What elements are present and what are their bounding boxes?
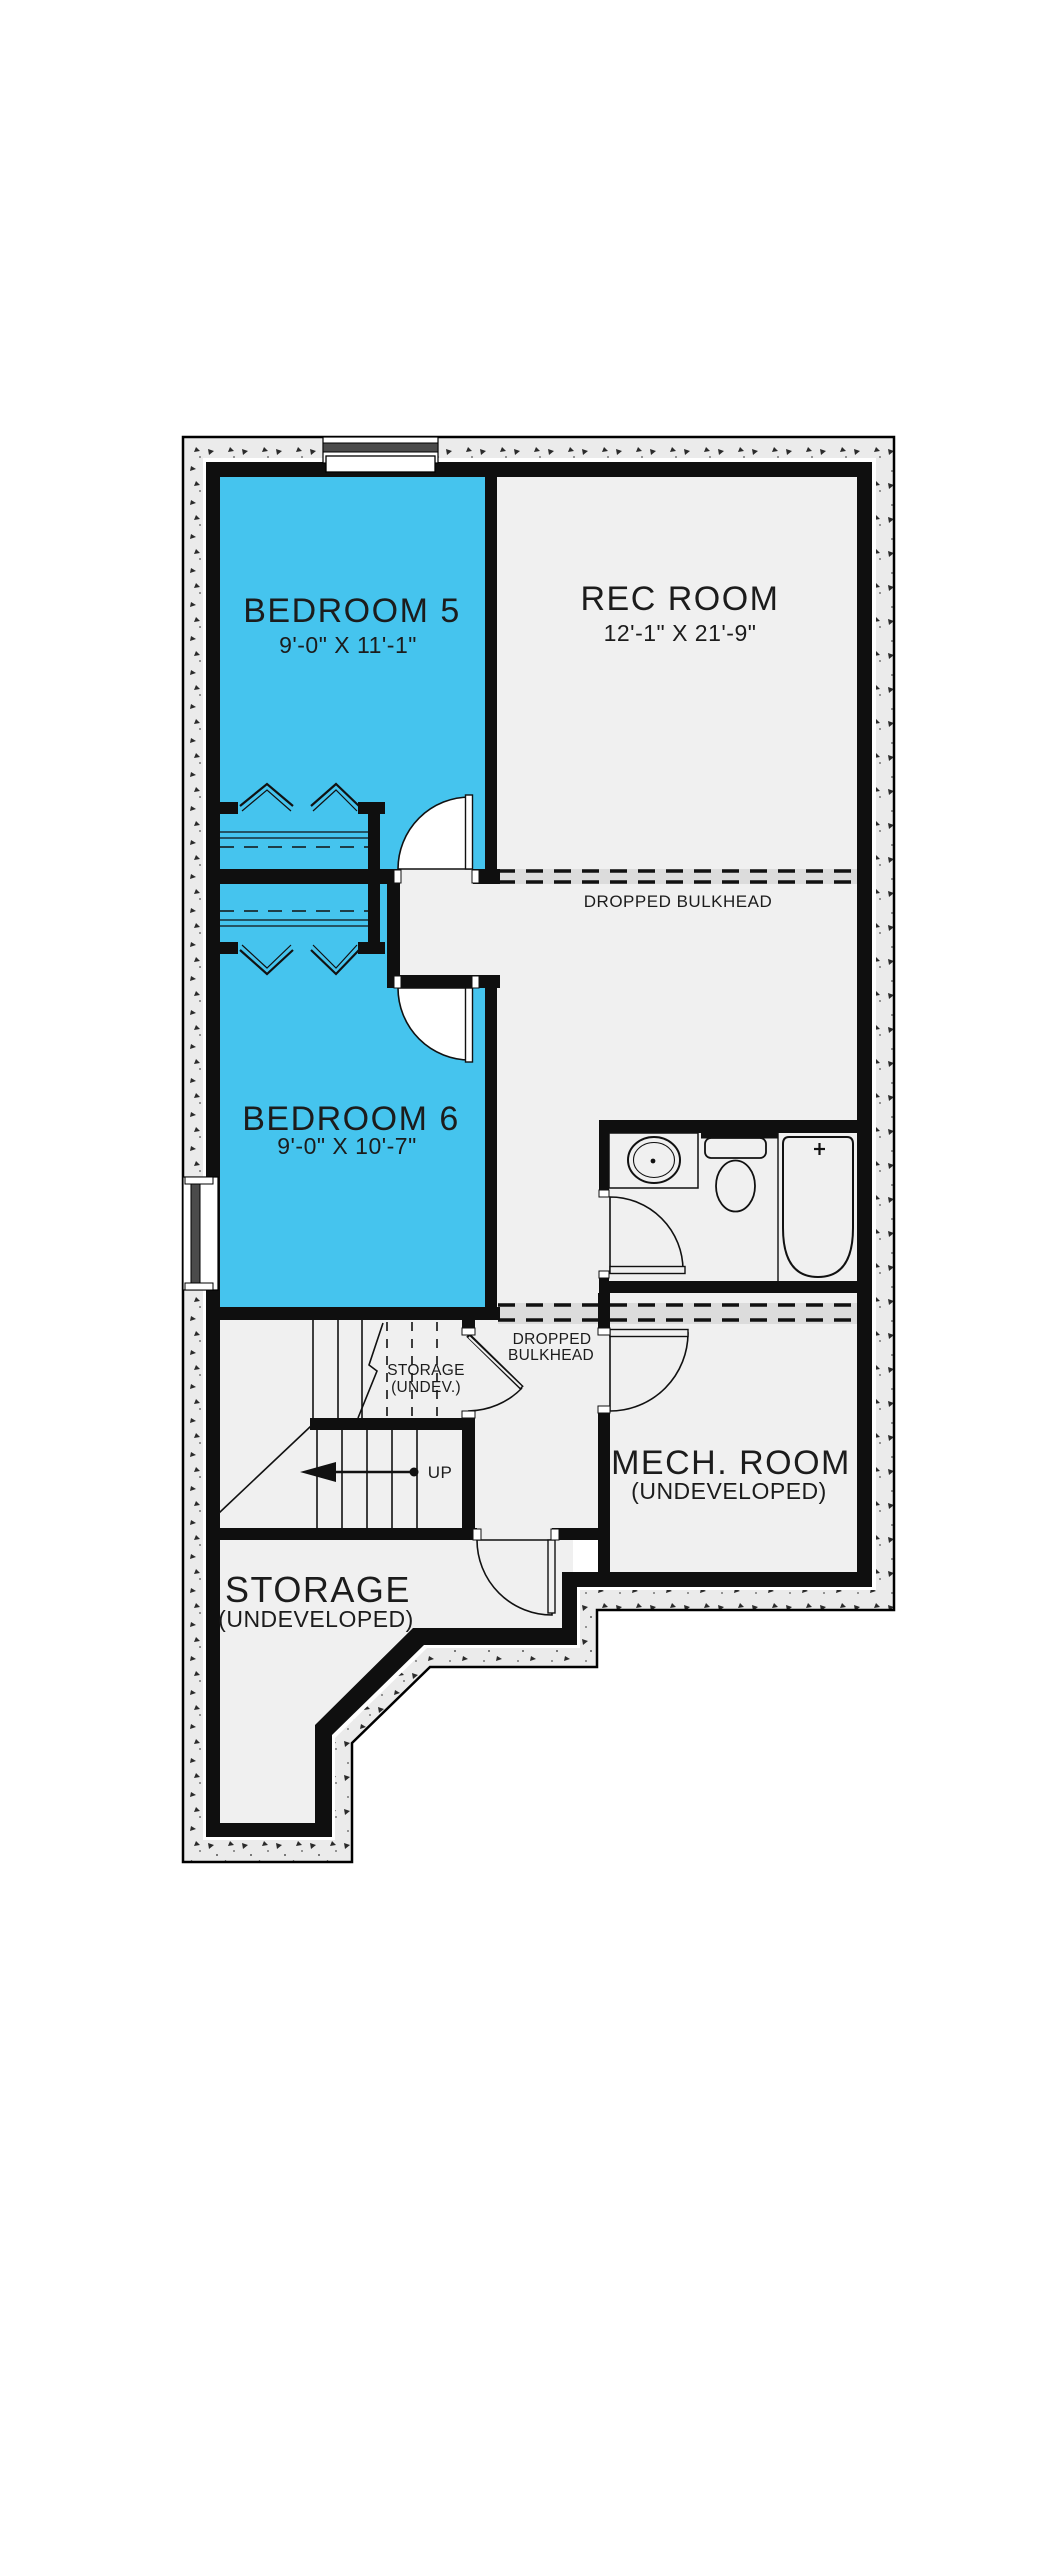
dropped-bulkhead-band-lower <box>498 1303 857 1324</box>
mech-room-label: MECH. ROOM <box>611 1444 851 1482</box>
storage-room-qualifier: (UNDEVELOPED) <box>218 1606 414 1632</box>
sink-drain <box>651 1159 656 1164</box>
floor-plan-page: BEDROOM 5 9'-0" X 11'-1" REC ROOM 12'-1"… <box>0 0 1042 2550</box>
toilet-tank <box>705 1138 766 1158</box>
bedroom-5-dims: 9'-0" X 11'-1" <box>279 632 417 658</box>
dropped-bulkhead-lower-line2: BULKHEAD <box>508 1347 594 1364</box>
bathtub <box>783 1137 853 1277</box>
storage-room-label: STORAGE <box>225 1569 411 1610</box>
rec-room-label: REC ROOM <box>581 580 780 618</box>
wall-cavity-void <box>573 1540 598 1572</box>
under-stair-storage-qualifier: (UNDEV.) <box>391 1379 461 1396</box>
dropped-bulkhead-upper-label: DROPPED BULKHEAD <box>584 892 772 911</box>
floor-plan-canvas: BEDROOM 5 9'-0" X 11'-1" REC ROOM 12'-1"… <box>0 0 1042 2550</box>
rec-room-dims: 12'-1" X 21'-9" <box>604 620 757 646</box>
bedroom-5-label: BEDROOM 5 <box>243 592 461 630</box>
stairs-up-label: UP <box>428 1463 453 1482</box>
under-stair-storage-label: STORAGE <box>387 1362 465 1379</box>
dropped-bulkhead-band-upper <box>498 869 857 884</box>
door-nook-floor <box>400 869 500 988</box>
window-top-bedroom5 <box>323 437 438 472</box>
mech-room-qualifier: (UNDEVELOPED) <box>631 1478 827 1504</box>
toilet-bowl <box>716 1161 755 1212</box>
dropped-bulkhead-lower-line1: DROPPED <box>513 1331 592 1348</box>
window-left-bedroom6 <box>183 1177 218 1290</box>
bedroom-6-dims: 9'-0" X 10'-7" <box>277 1133 417 1159</box>
